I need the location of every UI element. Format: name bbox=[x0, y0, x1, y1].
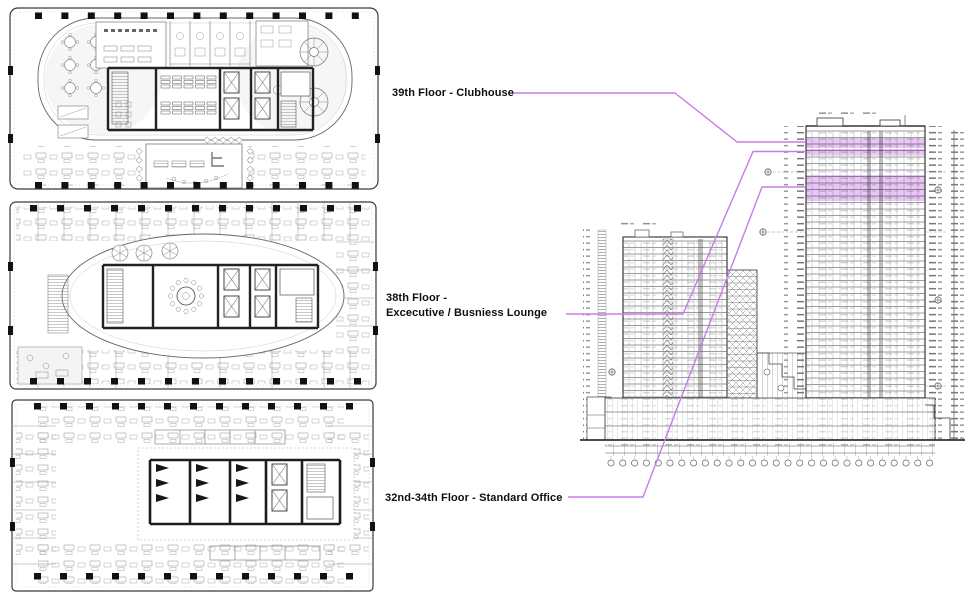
label-38th-floor-lounge: 38th Floor -Excecutive / Busniess Lounge bbox=[386, 291, 547, 320]
bottom-dimension-strip bbox=[605, 443, 935, 456]
plan-a-lounge-circle-1 bbox=[300, 38, 328, 66]
mid-tower bbox=[727, 270, 757, 398]
right-dimension-column bbox=[949, 130, 968, 440]
floor-plan-39th-clubhouse bbox=[8, 6, 380, 193]
plan-b-escalator bbox=[48, 275, 68, 333]
plan-b-boardroom-table bbox=[177, 287, 195, 305]
plan-a-meeting-room bbox=[96, 22, 166, 68]
floor-plan-38th-lounge bbox=[8, 200, 378, 392]
label-38th-line1: 38th Floor - bbox=[386, 292, 447, 304]
building-section-elevation bbox=[575, 110, 969, 520]
plan-b-lounge-corner bbox=[18, 347, 82, 384]
floor-plan-32-34-office bbox=[10, 398, 375, 594]
tall-tower bbox=[782, 110, 944, 440]
label-39th-floor-clubhouse: 39th Floor - Clubhouse bbox=[392, 86, 514, 101]
plan-b-cafe-tables bbox=[112, 243, 178, 261]
grid-bubbles bbox=[608, 456, 933, 466]
label-38th-line2: Excecutive / Busniess Lounge bbox=[386, 307, 547, 319]
plan-a-stair bbox=[112, 72, 128, 124]
plan-a-open-office-left bbox=[22, 146, 140, 186]
stacking-diagram-canvas: 39th Floor - Clubhouse 38th Floor -Excec… bbox=[0, 0, 969, 599]
plan-c-open-office-top bbox=[38, 406, 344, 446]
podium bbox=[587, 397, 950, 440]
label-32-34th-floor-office: 32nd-34th Floor - Standard Office bbox=[385, 491, 562, 506]
left-tower bbox=[623, 230, 727, 398]
tall-tower-right-levels bbox=[925, 126, 944, 440]
plan-a-open-office-right bbox=[248, 146, 366, 186]
plan-b-oval-corridor bbox=[62, 234, 344, 358]
rooftop-penthouse bbox=[817, 118, 843, 126]
tall-tower-left-levels bbox=[782, 126, 806, 440]
